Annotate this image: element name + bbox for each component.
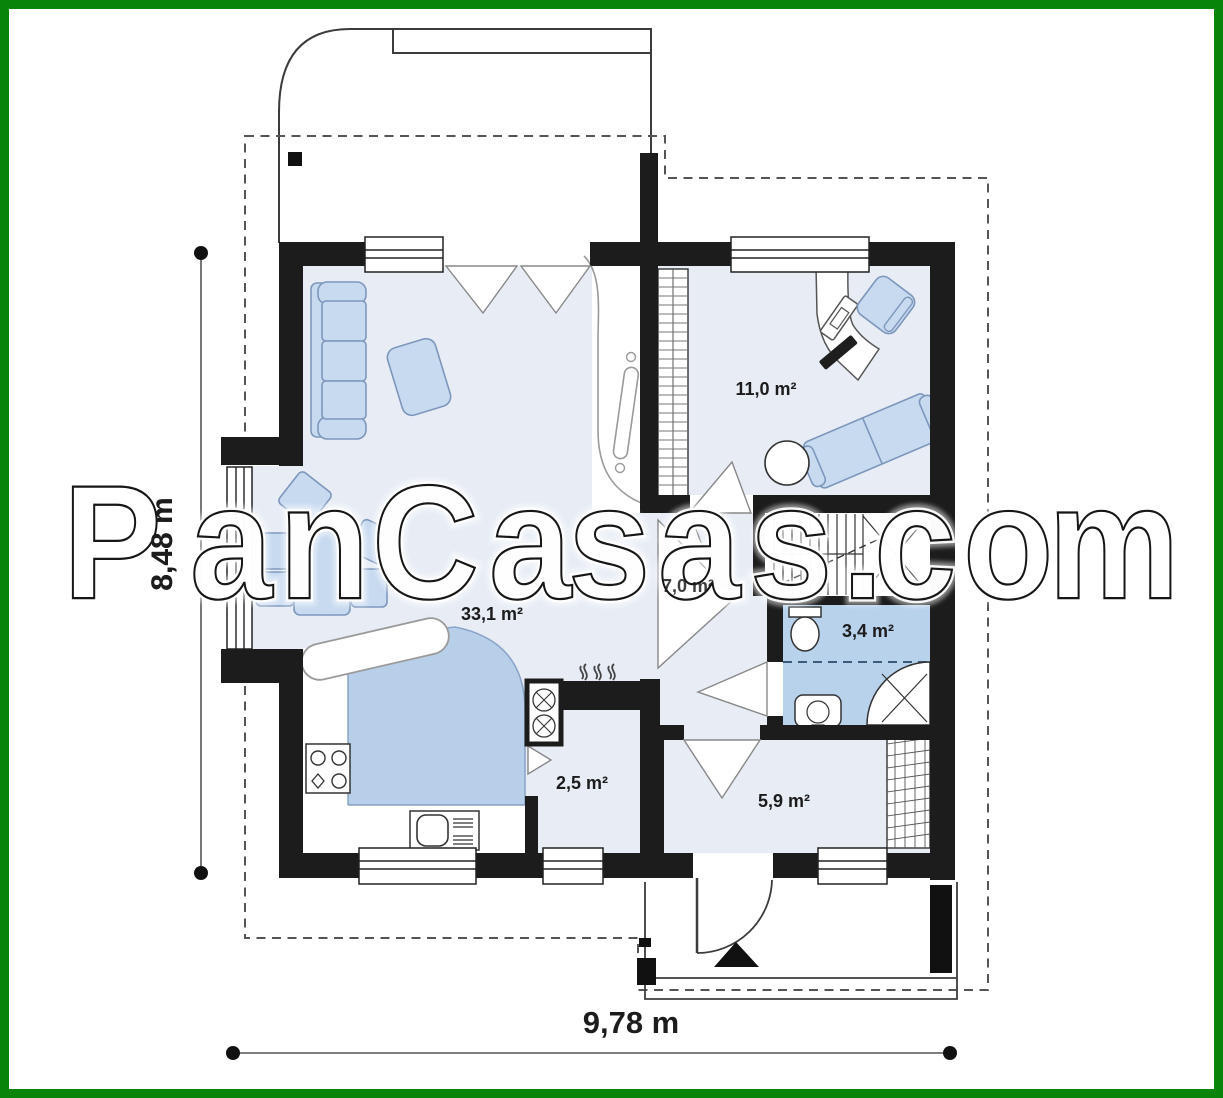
svg-text:5,9 m²: 5,9 m² <box>758 791 810 811</box>
svg-text:9,78 m: 9,78 m <box>583 1005 680 1040</box>
svg-text:11,0 m²: 11,0 m² <box>735 379 796 399</box>
svg-text:33,1 m²: 33,1 m² <box>461 604 523 624</box>
svg-text:P anCasas.com: P anCasas.com <box>63 452 1180 633</box>
svg-text:7,0 m²: 7,0 m² <box>662 576 714 596</box>
svg-text:3,4 m²: 3,4 m² <box>842 621 894 641</box>
svg-text:2,5 m²: 2,5 m² <box>556 773 608 793</box>
svg-text:8,48 m: 8,48 m <box>146 497 179 590</box>
